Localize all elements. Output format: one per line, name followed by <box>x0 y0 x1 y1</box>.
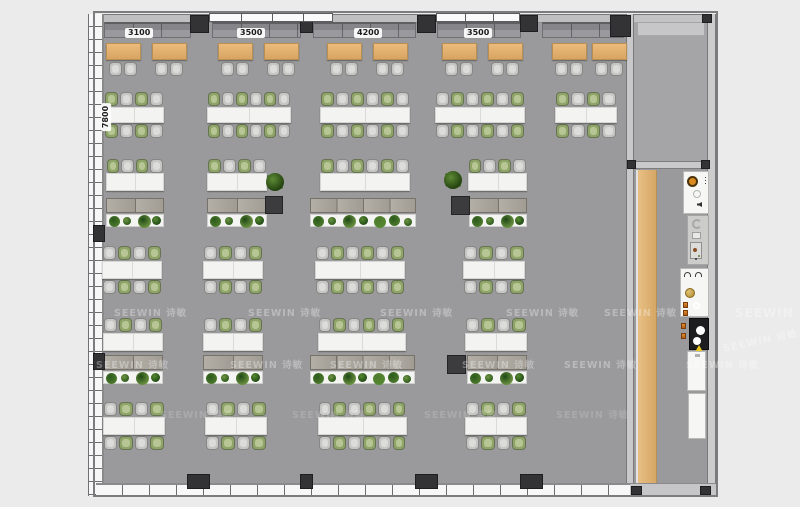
dining-table <box>103 333 163 351</box>
plant <box>500 372 513 385</box>
bench-seam <box>494 24 495 37</box>
dining-chair <box>103 280 116 294</box>
gold-icon <box>685 288 695 298</box>
dining-chair <box>336 159 349 173</box>
watermark: SEEWIN 诗敏 <box>506 305 579 319</box>
dining-chair <box>133 280 146 294</box>
dining-chair <box>107 159 120 173</box>
dining-chair <box>316 280 329 294</box>
dining-chair <box>587 92 601 106</box>
column-pillar <box>610 15 631 37</box>
watermark: SEEWIN 诗敏 <box>424 407 497 421</box>
dining-table <box>468 173 527 191</box>
watermark: SEEWIN 诗敏 <box>292 407 365 421</box>
plant <box>255 216 264 225</box>
dining-chair <box>253 159 266 173</box>
dining-chair <box>479 280 493 294</box>
dining-chair <box>376 246 389 260</box>
window-mullion <box>272 14 273 21</box>
dining-chair <box>321 159 334 173</box>
dining-chair <box>510 280 524 294</box>
dining-chair <box>237 436 251 450</box>
booth-chair <box>391 62 404 76</box>
spk-icon <box>697 202 702 207</box>
plant <box>358 373 367 382</box>
plant <box>343 372 356 385</box>
dimension-label: 3500 <box>237 28 265 38</box>
dining-chair <box>222 124 234 138</box>
dining-table <box>465 333 527 351</box>
dining-chair <box>104 318 117 332</box>
dining-chair <box>587 124 601 138</box>
dining-chair <box>208 159 221 173</box>
dimension-label: 3100 <box>125 28 153 38</box>
booth-table <box>442 43 477 60</box>
watermark: SEEWIN 诗敏 <box>96 357 169 371</box>
dining-chair <box>348 318 361 332</box>
dining-chair <box>481 124 494 138</box>
dining-chair <box>366 92 379 106</box>
dining-chair <box>351 159 364 173</box>
watermark: SEEWIN 诗敏 <box>248 305 321 319</box>
dining-chair <box>602 92 616 106</box>
plant <box>501 215 514 228</box>
watermark: SEEWIN 诗敏 <box>114 305 187 319</box>
dimension-label-vertical: 7800 <box>101 103 111 131</box>
wring-icon <box>693 302 700 309</box>
dining-chair <box>396 159 409 173</box>
dining-chair <box>346 280 359 294</box>
plant <box>486 217 494 225</box>
booth-chair <box>595 62 608 76</box>
dining-chair <box>336 92 349 106</box>
plant <box>152 216 161 225</box>
planter-box <box>106 214 164 227</box>
dining-chair <box>333 436 346 450</box>
bench-seam <box>599 24 600 37</box>
chip-icon <box>683 302 688 308</box>
booth-chair <box>282 62 295 76</box>
dining-chair <box>204 246 217 260</box>
booth-chair <box>555 62 568 76</box>
dining-chair <box>378 402 391 416</box>
dining-chair <box>571 124 585 138</box>
dining-chair <box>104 402 118 416</box>
window-mullion <box>465 14 466 21</box>
dining-chair <box>222 92 234 106</box>
dining-chair <box>556 124 570 138</box>
dining-chair <box>351 124 364 138</box>
dining-chair <box>319 318 332 332</box>
dining-chair <box>219 280 232 294</box>
dining-chair <box>264 92 276 106</box>
plant <box>515 373 524 382</box>
dots-icon <box>705 177 706 185</box>
booth-chair <box>610 62 623 76</box>
watermark: SEEWIN 诗敏 <box>735 304 800 321</box>
dining-chair <box>219 246 232 260</box>
dining-chair <box>148 246 161 260</box>
storage-cabinet <box>106 198 164 213</box>
corner-block <box>701 160 710 169</box>
dining-chair <box>148 280 161 294</box>
dining-chair <box>483 159 496 173</box>
dining-chair <box>495 246 509 260</box>
dining-chair <box>366 124 379 138</box>
hook-icon <box>684 272 691 277</box>
booth-chair <box>491 62 504 76</box>
dining-chair <box>134 318 147 332</box>
dining-chair <box>121 159 134 173</box>
storage-cabinet <box>310 198 416 213</box>
dining-chair <box>392 318 405 332</box>
plant <box>106 373 117 384</box>
booth-table <box>552 43 587 60</box>
dining-chair <box>250 124 262 138</box>
storage-cabinet <box>469 198 527 213</box>
dining-table <box>102 261 162 279</box>
dining-chair <box>204 280 217 294</box>
column-pillar <box>415 474 438 489</box>
dining-chair <box>436 92 449 106</box>
planter-box <box>207 214 267 227</box>
booth-table <box>152 43 187 60</box>
dining-chair <box>238 159 251 173</box>
pantry-unit-a <box>683 171 709 214</box>
booth-chair <box>124 62 137 76</box>
plant <box>388 372 399 383</box>
booth-table <box>106 43 141 60</box>
corner-block <box>627 160 636 169</box>
watermark: SEEWIN 诗敏 <box>564 357 637 371</box>
dining-chair <box>348 436 361 450</box>
dining-chair <box>479 246 493 260</box>
booth-chair <box>460 62 473 76</box>
dining-chair <box>250 92 262 106</box>
dining-chair <box>237 402 251 416</box>
booth-chair <box>330 62 343 76</box>
watermark: SEEWIN 诗敏 <box>556 407 629 421</box>
plant <box>221 374 229 382</box>
dining-chair <box>135 402 149 416</box>
watermark: SEEWIN 诗敏 <box>380 305 453 319</box>
dining-chair <box>118 246 131 260</box>
dining-chair <box>135 124 148 138</box>
window-mullion <box>493 14 494 21</box>
window-band <box>209 13 333 22</box>
dining-chair <box>319 436 332 450</box>
dining-chair <box>469 159 482 173</box>
dining-chair <box>236 124 248 138</box>
dining-chair <box>510 246 524 260</box>
chip-icon <box>681 333 686 339</box>
bench-seam <box>161 24 162 37</box>
column-pillar <box>93 225 105 242</box>
dining-chair <box>378 436 391 450</box>
column-pillar <box>520 474 543 489</box>
ringlet-icon <box>693 190 701 198</box>
dining-table <box>320 173 410 191</box>
bench-seam <box>342 24 343 37</box>
dining-chair <box>208 92 220 106</box>
plant <box>240 215 253 228</box>
dining-chair <box>234 280 247 294</box>
booth-table <box>264 43 299 60</box>
dining-table <box>315 261 405 279</box>
storage-cabinet <box>207 198 267 213</box>
dining-chair <box>377 318 390 332</box>
dining-chair <box>234 246 247 260</box>
plant <box>389 215 400 226</box>
watermark: SEEWIN 诗敏 <box>721 324 799 355</box>
dining-chair <box>512 318 526 332</box>
plant <box>359 216 368 225</box>
watermark: SEEWIN 诗敏 <box>462 357 535 371</box>
dining-chair <box>150 92 163 106</box>
potted-plant <box>444 171 462 189</box>
dining-table <box>203 261 263 279</box>
dining-chair <box>393 402 406 416</box>
dining-chair <box>133 246 146 260</box>
dining-chair <box>481 92 494 106</box>
planter-box <box>467 371 527 384</box>
dining-chair <box>149 318 162 332</box>
booth-table <box>592 43 627 60</box>
plant <box>136 372 149 385</box>
corner-block <box>702 14 712 23</box>
dining-chair <box>497 402 511 416</box>
watermark: SEEWIN 诗敏 <box>604 305 677 319</box>
plant <box>151 373 160 382</box>
dining-chair <box>376 280 389 294</box>
booth-chair <box>570 62 583 76</box>
dining-chair <box>381 92 394 106</box>
dining-chair <box>119 318 132 332</box>
booth-chair <box>506 62 519 76</box>
dining-chair <box>464 280 478 294</box>
burner-icon <box>693 337 701 345</box>
booth-chair <box>445 62 458 76</box>
dining-chair <box>466 92 479 106</box>
dining-chair <box>208 124 220 138</box>
plant <box>109 216 120 227</box>
furniture-layer: SEEWIN 诗敏SEEWIN 诗敏SEEWIN 诗敏SEEWIN 诗敏SEEW… <box>0 0 800 507</box>
dining-chair <box>391 246 404 260</box>
dining-table <box>207 173 267 191</box>
bench-seam <box>398 24 399 37</box>
booth-chair <box>345 62 358 76</box>
watermark: SEEWIN 诗敏 <box>686 357 759 371</box>
booth-table <box>373 43 408 60</box>
dining-table <box>104 107 164 123</box>
planter-box <box>310 371 415 384</box>
booth-chair <box>267 62 280 76</box>
dining-chair <box>221 436 235 450</box>
dining-chair <box>249 246 262 260</box>
dining-chair <box>120 124 133 138</box>
cring-icon <box>692 219 702 229</box>
column-pillar <box>300 474 313 489</box>
booth-table <box>488 43 523 60</box>
dining-table <box>463 261 525 279</box>
window-mullion <box>241 14 242 21</box>
plant <box>123 217 131 225</box>
column-pillar <box>417 15 436 33</box>
dining-chair <box>511 92 524 106</box>
dining-table <box>103 417 165 435</box>
plant <box>403 375 411 383</box>
dining-table <box>435 107 525 123</box>
dining-chair <box>252 402 266 416</box>
dining-chair <box>119 402 133 416</box>
dining-chair <box>336 124 349 138</box>
bench-seam <box>571 24 572 37</box>
dining-chair <box>351 92 364 106</box>
dining-chair <box>391 280 404 294</box>
dining-chair <box>103 246 116 260</box>
dining-chair <box>331 246 344 260</box>
dining-chair <box>393 436 406 450</box>
dining-table <box>318 333 406 351</box>
dining-chair <box>278 124 290 138</box>
bench-seam <box>269 24 270 37</box>
booth-chair <box>155 62 168 76</box>
dimension-label: 3500 <box>464 28 492 38</box>
plant <box>515 216 524 225</box>
dining-chair <box>381 124 394 138</box>
dining-chair <box>396 92 409 106</box>
booth-chair <box>376 62 389 76</box>
ubox-icon <box>692 232 701 239</box>
watermark: SEEWIN 诗敏 <box>160 407 233 421</box>
dining-chair <box>223 159 236 173</box>
booth-chair <box>221 62 234 76</box>
booth-table <box>218 43 253 60</box>
plant <box>210 216 221 227</box>
pantry-unit-c <box>680 268 709 317</box>
dining-chair <box>135 92 148 106</box>
hook-icon <box>695 272 702 277</box>
dining-chair <box>150 436 164 450</box>
floorplan-canvas: SEEWIN 诗敏SEEWIN 诗敏SEEWIN 诗敏SEEWIN 诗敏SEEW… <box>0 0 800 507</box>
chip-icon <box>683 310 688 316</box>
dining-chair <box>278 92 290 106</box>
dining-table <box>555 107 617 123</box>
column-pillar <box>187 474 210 489</box>
dining-chair <box>316 246 329 260</box>
dining-chair <box>120 92 133 106</box>
plant <box>236 372 249 385</box>
dining-chair <box>331 280 344 294</box>
plant <box>251 373 260 382</box>
corner-block <box>700 486 711 495</box>
dining-chair <box>150 124 163 138</box>
dining-chair <box>381 159 394 173</box>
potted-plant <box>266 173 284 191</box>
dining-chair <box>602 124 616 138</box>
column-pillar <box>190 15 209 33</box>
column-pillar <box>520 15 538 32</box>
dining-chair <box>466 318 480 332</box>
watermark: SEEWIN 诗敏 <box>230 357 303 371</box>
dining-chair <box>451 124 464 138</box>
plant <box>343 215 356 228</box>
dining-chair <box>234 318 247 332</box>
dining-chair <box>511 124 524 138</box>
dining-chair <box>512 436 526 450</box>
dining-chair <box>104 436 118 450</box>
dining-table <box>203 333 263 351</box>
dining-chair <box>321 124 334 138</box>
dining-chair <box>556 92 570 106</box>
dining-chair <box>249 280 262 294</box>
dining-chair <box>219 318 232 332</box>
planter-box <box>103 371 163 384</box>
dining-chair <box>495 280 509 294</box>
dining-chair <box>496 124 509 138</box>
plant <box>328 374 336 382</box>
booth-chair <box>109 62 122 76</box>
window-band <box>436 13 520 22</box>
dining-chair <box>497 436 511 450</box>
speck-icon <box>690 242 702 259</box>
dining-table <box>106 173 164 191</box>
plant <box>121 374 129 382</box>
dining-chair <box>497 318 511 332</box>
plant <box>328 217 336 225</box>
planter-box <box>203 371 263 384</box>
dining-chair <box>150 159 163 173</box>
dining-chair <box>466 124 479 138</box>
dining-chair <box>361 280 374 294</box>
dining-chair <box>236 92 248 106</box>
dining-chair <box>361 246 374 260</box>
booth-chair <box>236 62 249 76</box>
dining-chair <box>135 436 149 450</box>
pantry-unit-b <box>687 215 709 265</box>
dining-chair <box>451 92 464 106</box>
dark-cabinet <box>265 196 283 214</box>
pantry-unit-f <box>688 393 706 439</box>
plant <box>374 216 386 228</box>
dining-chair <box>206 436 220 450</box>
dining-chair <box>363 318 376 332</box>
planter-box <box>310 214 416 227</box>
dining-chair <box>119 436 133 450</box>
corner-block <box>631 486 642 495</box>
plant <box>404 218 412 226</box>
dining-table <box>207 107 291 123</box>
bench-seam <box>297 24 298 37</box>
dimension-label: 4200 <box>354 28 382 38</box>
dining-chair <box>363 436 376 450</box>
dining-chair <box>118 280 131 294</box>
booth-chair <box>170 62 183 76</box>
dining-chair <box>513 159 526 173</box>
dining-chair <box>321 92 334 106</box>
dining-chair <box>481 436 495 450</box>
plant <box>206 373 217 384</box>
dining-chair <box>498 159 511 173</box>
dining-chair <box>333 318 346 332</box>
dining-chair <box>136 159 149 173</box>
dining-chair <box>204 318 217 332</box>
chip-icon <box>681 323 686 329</box>
watermark: SEEWIN 诗敏 <box>330 357 403 371</box>
dining-chair <box>396 124 409 138</box>
plant <box>313 216 324 227</box>
plant <box>138 215 151 228</box>
